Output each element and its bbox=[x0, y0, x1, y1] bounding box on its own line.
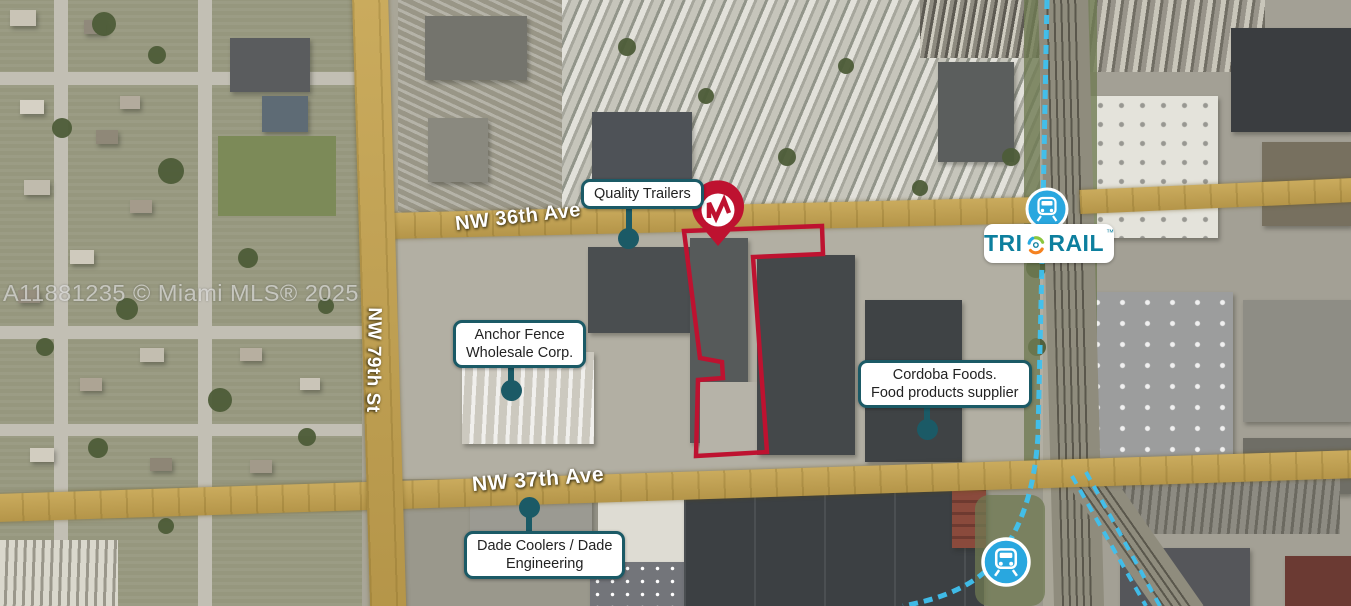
callout-label-line2: Wholesale Corp. bbox=[466, 344, 573, 362]
aerial-map: NW 36th Ave NW 37th Ave NW 79th St bbox=[0, 0, 1351, 606]
tri-rail-sign[interactable]: TRI RAIL ™ bbox=[984, 224, 1114, 263]
mls-watermark: A11881235 © Miami MLS® 2025 bbox=[3, 280, 359, 307]
callout-dot bbox=[917, 419, 938, 440]
tri-rail-line bbox=[903, 0, 1047, 606]
callout-dot bbox=[519, 497, 540, 518]
train-station-icon[interactable] bbox=[983, 539, 1029, 585]
callout-dot bbox=[501, 380, 522, 401]
callout-quality-trailers[interactable]: Quality Trailers bbox=[581, 179, 704, 209]
tri-rail-trademark: ™ bbox=[1106, 228, 1114, 237]
callout-label-line1: Cordoba Foods. bbox=[871, 366, 1019, 384]
callout-cordoba-foods[interactable]: Cordoba Foods. Food products supplier bbox=[858, 360, 1032, 408]
callout-label-line1: Anchor Fence bbox=[466, 326, 573, 344]
callout-label-line2: Engineering bbox=[477, 555, 612, 573]
tri-rail-swirl-icon bbox=[1026, 234, 1046, 256]
property-boundary bbox=[684, 226, 823, 456]
callout-anchor-fence[interactable]: Anchor Fence Wholesale Corp. bbox=[453, 320, 586, 368]
train-station-icon[interactable] bbox=[1027, 189, 1067, 229]
tri-rail-branch-line bbox=[1072, 476, 1146, 606]
callout-label-line1: Dade Coolers / Dade bbox=[477, 537, 612, 555]
callout-label: Quality Trailers bbox=[594, 186, 691, 202]
callout-label-line2: Food products supplier bbox=[871, 384, 1019, 402]
tri-rail-branch-line bbox=[1086, 472, 1160, 606]
tri-rail-brand-right: RAIL bbox=[1048, 230, 1104, 257]
callout-dade-coolers[interactable]: Dade Coolers / Dade Engineering bbox=[464, 531, 625, 579]
callout-dot bbox=[618, 228, 639, 249]
tri-rail-brand-left: TRI bbox=[984, 230, 1023, 257]
